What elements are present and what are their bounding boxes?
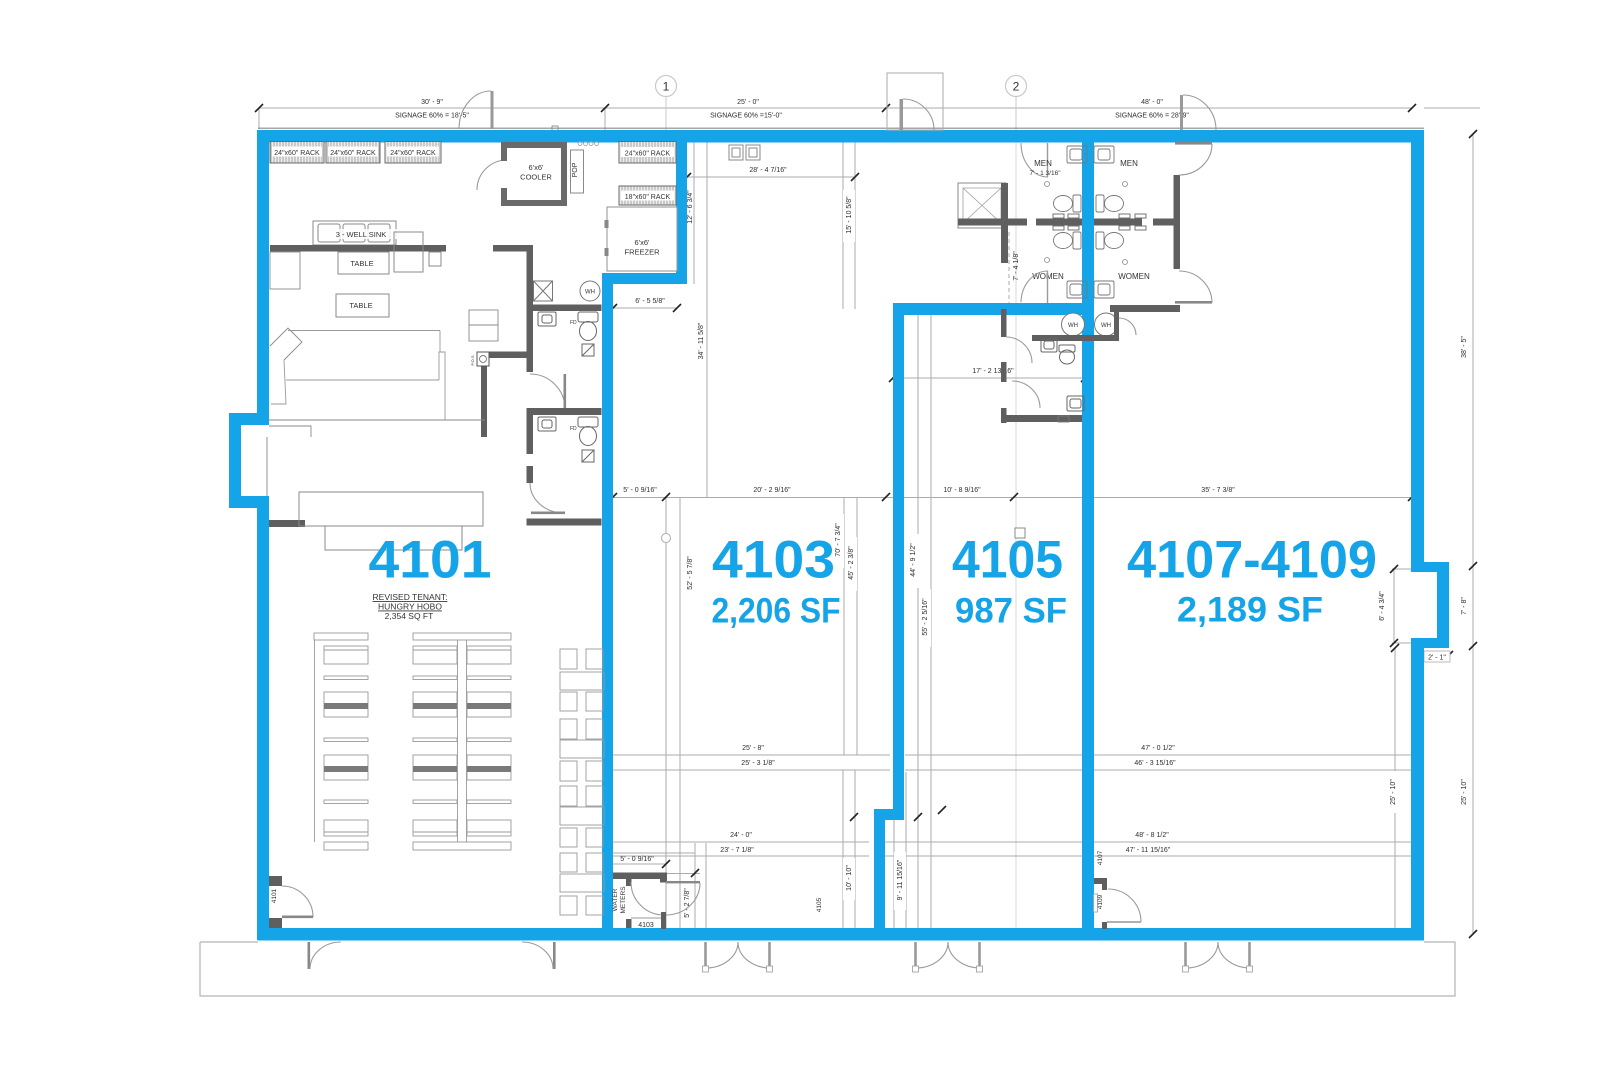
svg-text:15' - 10 5/8": 15' - 10 5/8": [846, 196, 853, 234]
svg-text:35' - 7 3/8": 35' - 7 3/8": [1201, 487, 1235, 494]
svg-text:25' - 10": 25' - 10": [1390, 779, 1397, 805]
svg-text:24"x60" RACK: 24"x60" RACK: [274, 150, 320, 157]
svg-text:6'x6': 6'x6': [635, 238, 651, 247]
svg-text:4107: 4107: [1097, 850, 1104, 865]
svg-text:POP: POP: [572, 162, 579, 177]
svg-text:6'x6': 6'x6': [529, 163, 545, 172]
svg-text:5' - 2 7/8": 5' - 2 7/8": [684, 888, 691, 918]
svg-text:48' - 0": 48' - 0": [1141, 99, 1163, 106]
svg-text:FD: FD: [570, 426, 577, 432]
svg-text:28' - 4 7/16": 28' - 4 7/16": [749, 167, 787, 174]
svg-text:38' - 5": 38' - 5": [1461, 336, 1468, 358]
svg-text:70' - 7 3/4": 70' - 7 3/4": [835, 523, 842, 557]
svg-text:4103: 4103: [712, 531, 835, 590]
svg-text:SIGNAGE 60% =15'-0": SIGNAGE 60% =15'-0": [710, 113, 782, 120]
svg-text:MEN: MEN: [1120, 159, 1138, 168]
svg-text:TABLE: TABLE: [350, 259, 373, 268]
svg-text:4101: 4101: [369, 531, 492, 590]
svg-text:METERS: METERS: [620, 886, 627, 914]
svg-text:18"x60" RACK: 18"x60" RACK: [625, 194, 671, 201]
svg-text:45' - 2 3/8": 45' - 2 3/8": [848, 546, 855, 580]
svg-text:7' - 4 1/8": 7' - 4 1/8": [1013, 251, 1020, 281]
svg-text:12' - 6 3/4": 12' - 6 3/4": [687, 190, 694, 224]
svg-text:P.O.S.: P.O.S.: [470, 354, 475, 365]
svg-text:COOLER: COOLER: [520, 173, 552, 182]
svg-text:24"x60" RACK: 24"x60" RACK: [330, 150, 376, 157]
svg-text:9' - 11 15/16": 9' - 11 15/16": [897, 859, 904, 900]
svg-text:6' - 5 5/8": 6' - 5 5/8": [635, 298, 665, 305]
svg-text:4109: 4109: [1097, 894, 1104, 909]
svg-text:30' - 9": 30' - 9": [421, 99, 443, 106]
svg-text:WH: WH: [585, 290, 595, 296]
svg-text:7' - 8": 7' - 8": [1461, 597, 1468, 615]
svg-text:46' - 3 15/16": 46' - 3 15/16": [1134, 760, 1176, 767]
svg-text:6' - 4 3/4": 6' - 4 3/4": [1379, 591, 1386, 621]
svg-text:10' - 8 9/16": 10' - 8 9/16": [943, 487, 981, 494]
svg-text:34' - 11 5/8": 34' - 11 5/8": [698, 322, 705, 359]
svg-text:2' - 1": 2' - 1": [1428, 655, 1446, 662]
svg-text:SIGNAGE 60% = 28'-9": SIGNAGE 60% = 28'-9": [1115, 113, 1189, 120]
svg-text:25' - 0": 25' - 0": [737, 99, 759, 106]
svg-text:1: 1: [663, 80, 670, 94]
svg-text:25' - 3 1/8": 25' - 3 1/8": [741, 760, 775, 767]
svg-text:17' - 2 13/16": 17' - 2 13/16": [972, 368, 1014, 375]
svg-text:4107-4109: 4107-4109: [1127, 531, 1377, 590]
svg-text:2: 2: [1013, 80, 1020, 94]
svg-text:FREEZER: FREEZER: [624, 248, 660, 257]
svg-text:7' - 1 3/16": 7' - 1 3/16": [1029, 170, 1061, 177]
svg-text:WOMEN: WOMEN: [1118, 272, 1150, 281]
svg-text:3 - WELL SINK: 3 - WELL SINK: [336, 230, 387, 239]
svg-text:WH: WH: [1101, 323, 1111, 329]
svg-text:TABLE: TABLE: [349, 301, 372, 310]
svg-text:20' - 2 9/16": 20' - 2 9/16": [753, 487, 791, 494]
svg-text:47' - 11 15/16": 47' - 11 15/16": [1126, 847, 1171, 854]
svg-text:24"x60" RACK: 24"x60" RACK: [625, 151, 671, 158]
svg-text:SIGNAGE 60% = 18'-5": SIGNAGE 60% = 18'-5": [395, 113, 469, 120]
svg-text:4101: 4101: [271, 888, 278, 903]
svg-text:44' - 9 1/2": 44' - 9 1/2": [910, 543, 917, 577]
svg-text:5' - 0 9/16": 5' - 0 9/16": [620, 856, 654, 863]
svg-text:23' - 7 1/8": 23' - 7 1/8": [720, 847, 754, 854]
svg-text:24' - 0": 24' - 0": [730, 832, 752, 839]
svg-text:WATER: WATER: [612, 888, 619, 911]
svg-text:24"x60" RACK: 24"x60" RACK: [390, 150, 436, 157]
svg-text:52' - 5 7/8": 52' - 5 7/8": [687, 556, 694, 590]
svg-text:47' - 0 1/2": 47' - 0 1/2": [1141, 745, 1175, 752]
svg-text:25' - 8": 25' - 8": [742, 745, 764, 752]
svg-text:HUNGRY HOBO: HUNGRY HOBO: [378, 602, 442, 612]
svg-text:4103: 4103: [638, 922, 654, 929]
svg-text:2,206 SF: 2,206 SF: [712, 592, 841, 631]
svg-text:987 SF: 987 SF: [955, 592, 1067, 631]
svg-text:10' - 10": 10' - 10": [846, 865, 853, 891]
svg-text:MEN: MEN: [1034, 159, 1052, 168]
svg-text:4105: 4105: [952, 531, 1063, 590]
svg-text:WH: WH: [1068, 323, 1078, 329]
svg-text:55' - 2 5/16": 55' - 2 5/16": [922, 598, 929, 636]
svg-text:REVISED TENANT:: REVISED TENANT:: [373, 592, 448, 602]
svg-text:FD: FD: [570, 320, 577, 326]
svg-text:2,189 SF: 2,189 SF: [1177, 591, 1323, 630]
svg-text:48' - 8 1/2": 48' - 8 1/2": [1135, 832, 1169, 839]
svg-text:4105: 4105: [816, 897, 823, 912]
svg-text:2,354 SQ FT: 2,354 SQ FT: [385, 611, 434, 621]
svg-text:25' - 10": 25' - 10": [1461, 779, 1468, 805]
svg-text:5' - 0 9/16": 5' - 0 9/16": [623, 487, 657, 494]
